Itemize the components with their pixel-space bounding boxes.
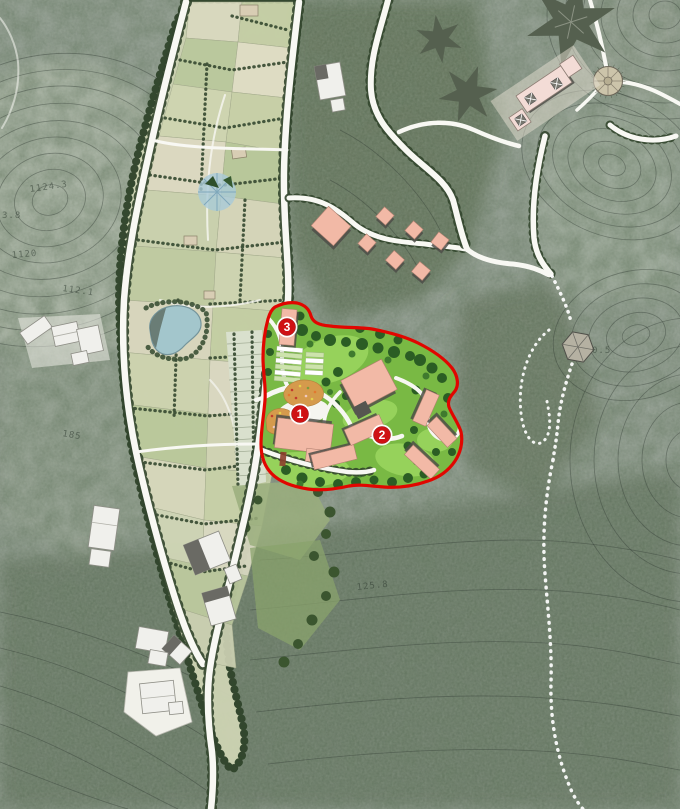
marker-number: 1 (297, 407, 304, 421)
tent-pavilion-icon (430, 29, 448, 49)
map-canvas: 1124.33.81120112.11850.5125.8 123 (0, 0, 680, 809)
contour-label: 3.8 (2, 211, 21, 221)
site-marker-3[interactable]: 3 (277, 317, 298, 338)
water-fan-feature (198, 173, 236, 211)
site-marker-1[interactable]: 1 (290, 404, 311, 425)
contour-label: 0.5 (592, 346, 611, 356)
existing-buildings-west (18, 314, 110, 368)
site-plan-map: 1124.33.81120112.11850.5125.8 123 (0, 0, 680, 809)
site-marker-2[interactable]: 2 (372, 425, 393, 446)
marker-number: 2 (379, 428, 386, 442)
tent-pavilion-icon (455, 80, 481, 107)
marker-number: 3 (284, 320, 291, 334)
